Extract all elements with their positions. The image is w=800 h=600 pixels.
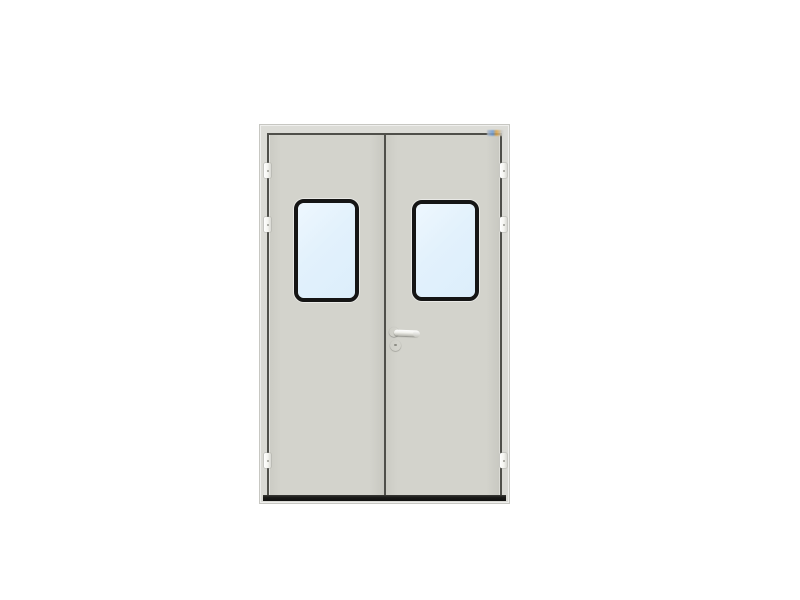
door-reveal-gap — [267, 133, 502, 496]
hinge-left-bottom — [264, 453, 271, 468]
keyhole — [394, 344, 397, 347]
hinge-left-top — [264, 163, 271, 178]
hinge-right-top — [500, 163, 507, 178]
product-photo — [0, 0, 800, 600]
photo-watermark — [487, 130, 504, 136]
double-door — [259, 124, 510, 504]
hinge-right-bottom — [500, 453, 507, 468]
hinge-left-middle — [264, 217, 271, 232]
keyhole-escutcheon — [390, 340, 401, 351]
handle-lever — [394, 329, 419, 336]
door-threshold — [263, 495, 506, 501]
hinge-right-middle — [500, 217, 507, 232]
